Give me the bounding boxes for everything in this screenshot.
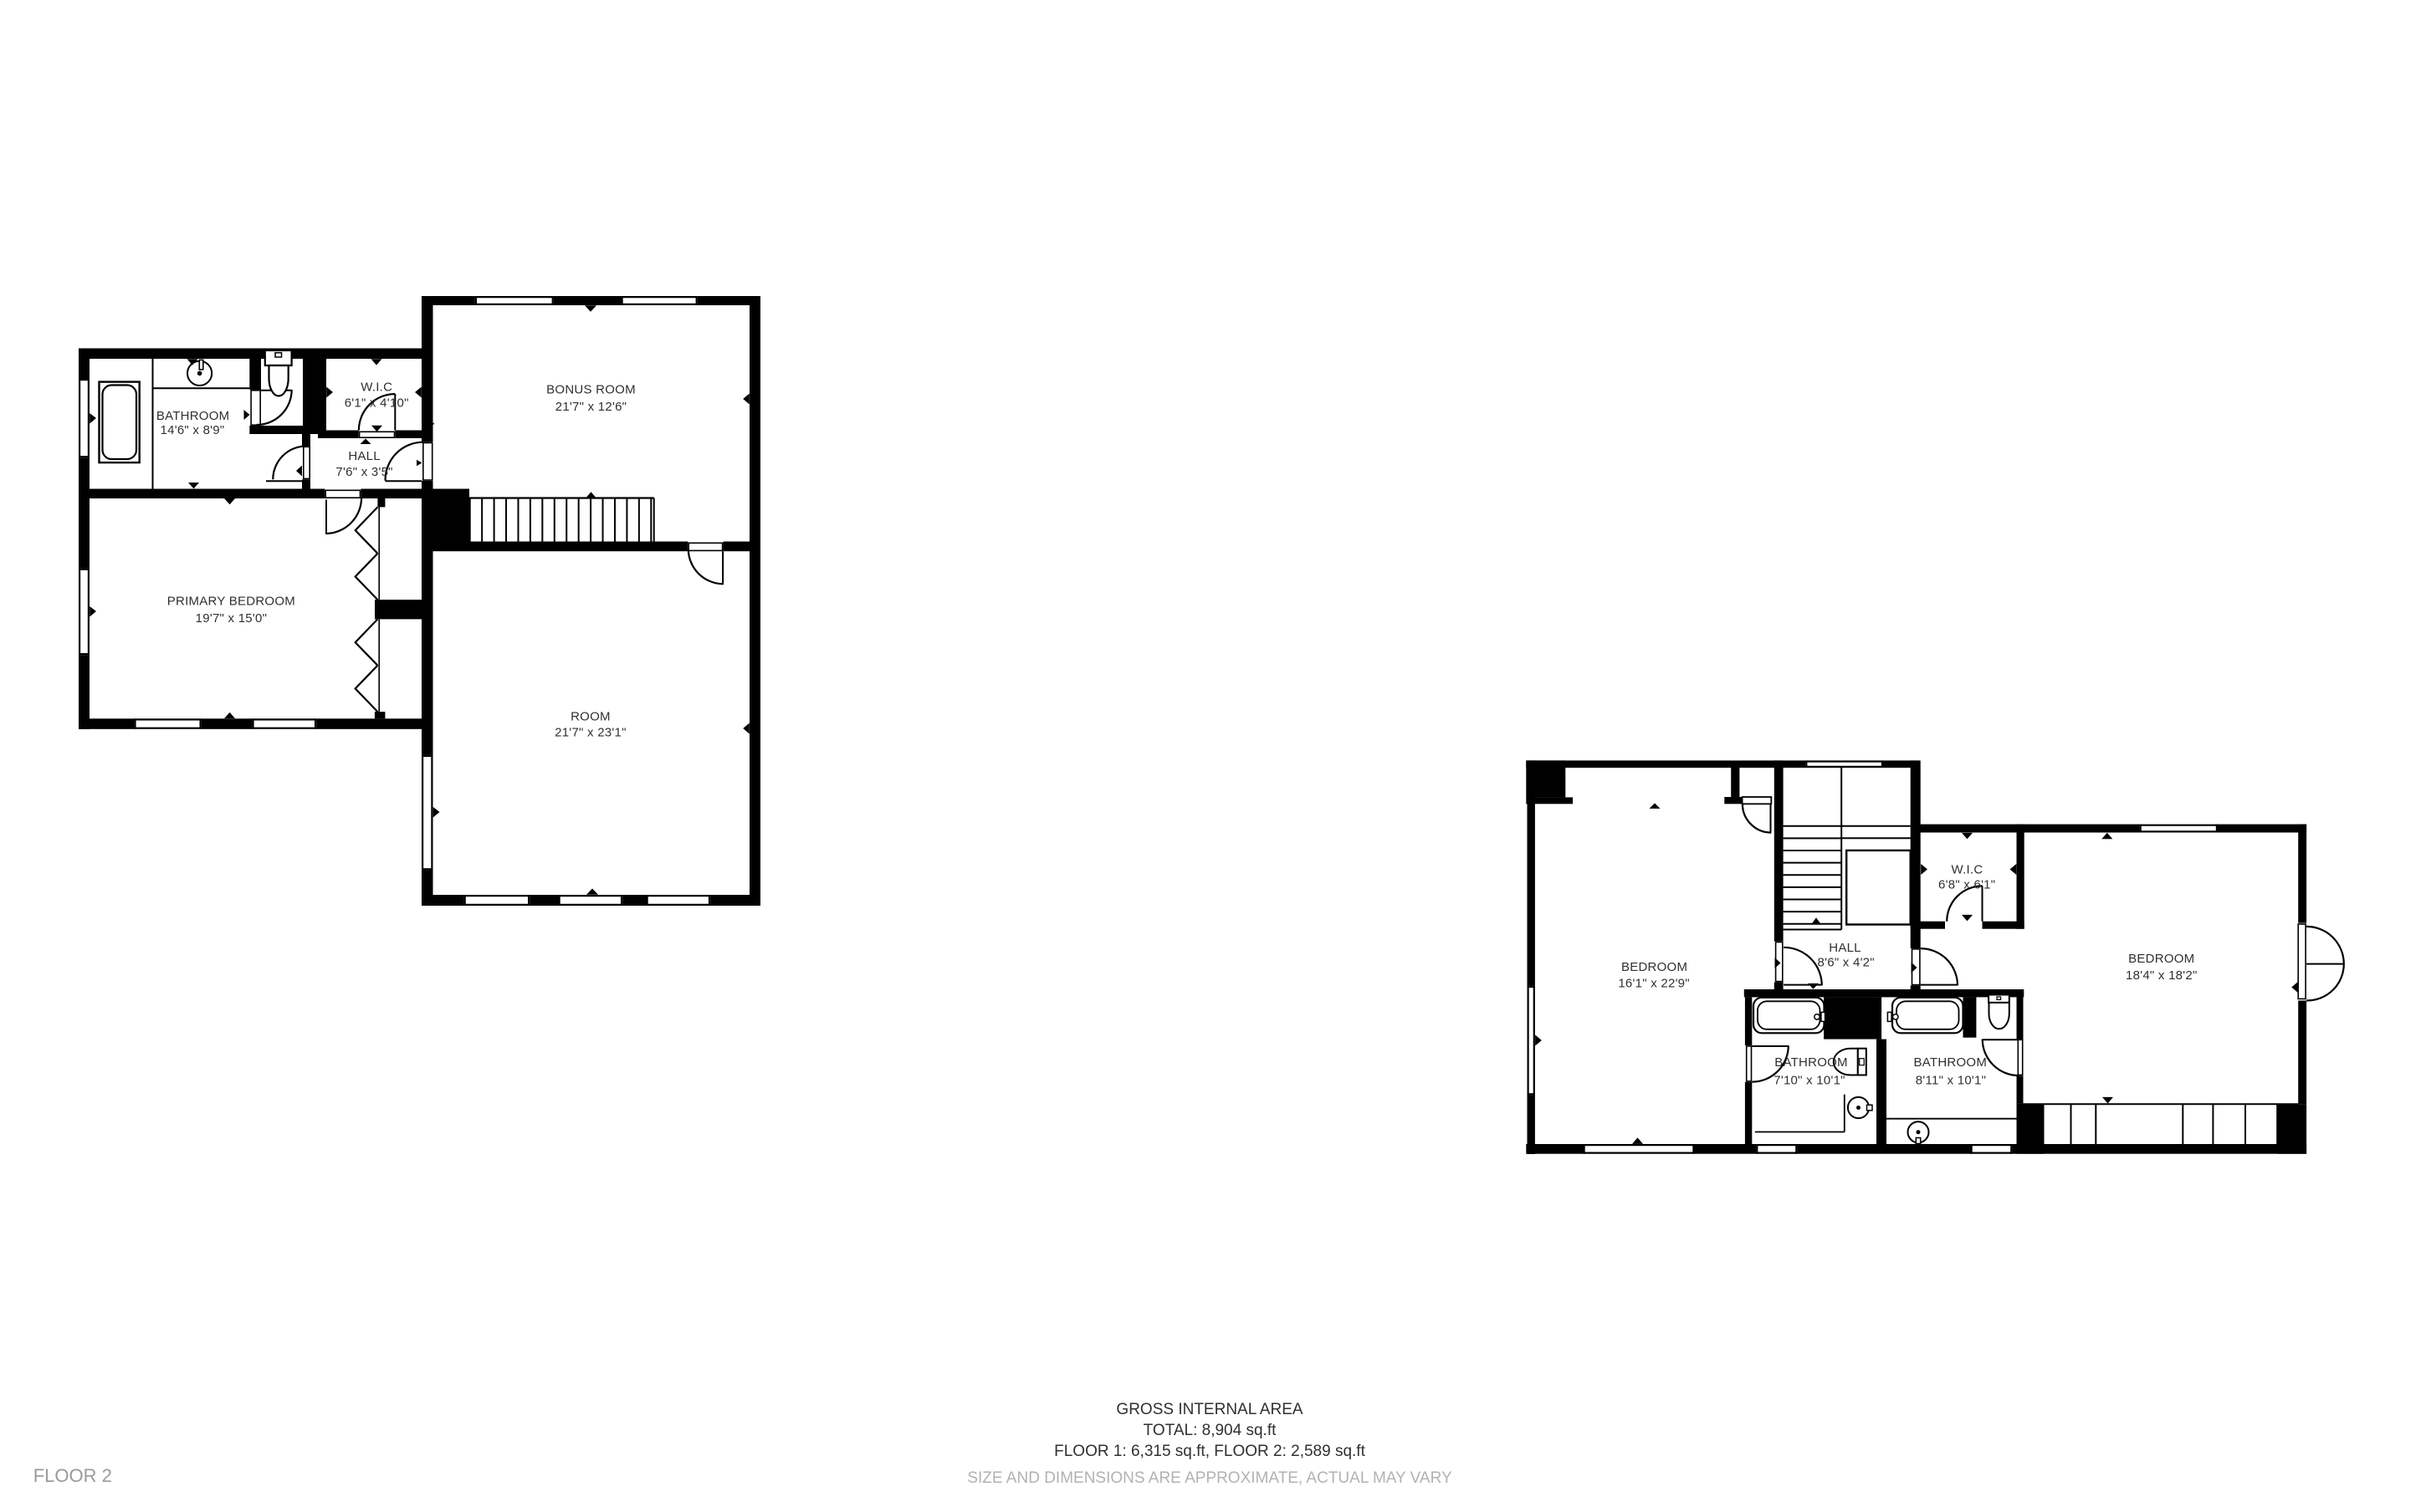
svg-text:HALL: HALL: [1829, 941, 1861, 955]
svg-text:14'6" x 8'9": 14'6" x 8'9": [161, 423, 225, 437]
svg-text:ROOM: ROOM: [571, 709, 611, 723]
svg-text:BATHROOM: BATHROOM: [1914, 1055, 1988, 1070]
svg-text:6'1" x 4'10": 6'1" x 4'10": [345, 396, 409, 410]
svg-text:6'8" x 6'1": 6'8" x 6'1": [1938, 877, 1995, 891]
svg-text:FLOOR 1: 6,315 sq.ft, FLOOR 2:: FLOOR 1: 6,315 sq.ft, FLOOR 2: 2,589 sq.…: [1054, 1443, 1365, 1460]
svg-text:19'7" x 15'0": 19'7" x 15'0": [196, 611, 268, 626]
svg-text:BATHROOM: BATHROOM: [1774, 1055, 1848, 1070]
svg-text:FLOOR 2: FLOOR 2: [33, 1465, 112, 1486]
svg-text:GROSS INTERNAL AREA: GROSS INTERNAL AREA: [1116, 1401, 1303, 1418]
svg-text:W.I.C: W.I.C: [1952, 863, 1983, 877]
svg-text:21'7" x 12'6": 21'7" x 12'6": [555, 400, 627, 414]
svg-text:16'1" x 22'9": 16'1" x 22'9": [1618, 977, 1690, 991]
svg-text:BATHROOM: BATHROOM: [156, 409, 230, 423]
svg-text:BONUS ROOM: BONUS ROOM: [546, 383, 636, 397]
svg-text:21'7" x 23'1": 21'7" x 23'1": [555, 725, 627, 739]
svg-text:BEDROOM: BEDROOM: [1621, 960, 1687, 974]
svg-text:TOTAL: 8,904 sq.ft: TOTAL: 8,904 sq.ft: [1144, 1422, 1277, 1439]
svg-text:HALL: HALL: [348, 449, 381, 463]
svg-text:BEDROOM: BEDROOM: [2128, 952, 2194, 966]
svg-text:SIZE AND DIMENSIONS ARE APPROX: SIZE AND DIMENSIONS ARE APPROXIMATE, ACT…: [967, 1469, 1452, 1487]
svg-text:18'4" x 18'2": 18'4" x 18'2": [2126, 968, 2198, 983]
svg-text:8'6" x 4'2": 8'6" x 4'2": [1818, 955, 1875, 969]
svg-text:PRIMARY BEDROOM: PRIMARY BEDROOM: [167, 594, 295, 608]
svg-text:W.I.C: W.I.C: [361, 380, 392, 394]
svg-text:7'10" x 10'1": 7'10" x 10'1": [1774, 1074, 1845, 1088]
svg-text:7'6" x 3'5": 7'6" x 3'5": [335, 465, 392, 479]
svg-text:8'11" x 10'1": 8'11" x 10'1": [1916, 1074, 1986, 1088]
